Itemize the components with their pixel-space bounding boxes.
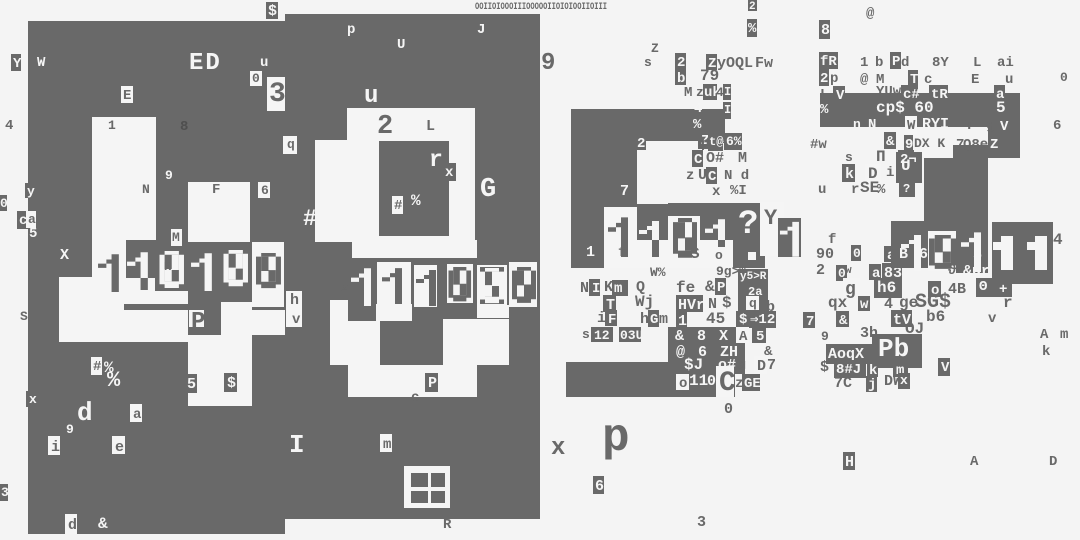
svg-text:w: w: [845, 265, 852, 277]
svg-text:0: 0: [0, 196, 8, 211]
svg-text:3: 3: [697, 514, 706, 531]
svg-text:2: 2: [637, 136, 645, 152]
svg-text:&: &: [839, 313, 848, 329]
svg-text:&: &: [705, 278, 715, 296]
svg-text:U: U: [901, 157, 911, 175]
svg-text:L: L: [973, 55, 981, 71]
svg-text:7: 7: [767, 357, 776, 374]
svg-text:o: o: [715, 248, 723, 263]
svg-text:U: U: [397, 37, 405, 53]
svg-text:7: 7: [620, 183, 629, 200]
svg-text:m: m: [614, 281, 622, 297]
svg-text:3: 3: [269, 79, 286, 110]
svg-text:h: h: [640, 311, 649, 328]
svg-text:c: c: [411, 390, 419, 406]
svg-text:6: 6: [261, 183, 269, 198]
svg-text:ED: ED: [189, 50, 222, 77]
svg-text:$: $: [739, 312, 747, 328]
svg-text:P: P: [892, 54, 900, 70]
svg-text:5: 5: [187, 376, 196, 393]
svg-text:y: y: [27, 184, 35, 199]
svg-text:%: %: [877, 182, 886, 198]
svg-text:z: z: [341, 281, 348, 295]
svg-text:ai: ai: [997, 55, 1014, 71]
svg-text:6: 6: [595, 478, 604, 495]
svg-text:Q8e: Q8e: [963, 137, 988, 153]
svg-text:O#: O#: [706, 150, 724, 167]
svg-text:90: 90: [816, 246, 834, 263]
svg-text:5: 5: [973, 247, 982, 264]
svg-text:C: C: [708, 169, 717, 185]
svg-text:v: v: [292, 312, 301, 328]
svg-text:S: S: [690, 245, 700, 263]
svg-text:z: z: [686, 168, 694, 184]
svg-text:h: h: [290, 292, 299, 309]
svg-text:V: V: [836, 88, 845, 104]
svg-text:1: 1: [108, 118, 116, 133]
svg-text:03U: 03U: [620, 328, 643, 343]
svg-text:Z: Z: [651, 41, 659, 56]
svg-text:?: ?: [738, 206, 758, 244]
svg-text:12: 12: [594, 328, 610, 343]
svg-text:&: &: [98, 515, 108, 533]
svg-text:0: 0: [853, 246, 861, 261]
svg-text:2: 2: [749, 1, 756, 13]
svg-text:p: p: [830, 71, 838, 87]
svg-text:R: R: [443, 517, 452, 533]
svg-text:n: n: [853, 117, 861, 132]
svg-text:F: F: [212, 182, 220, 198]
svg-text:q: q: [749, 296, 757, 311]
svg-text:5: 5: [996, 99, 1006, 117]
svg-text:6: 6: [919, 246, 928, 263]
svg-text:v: v: [988, 311, 997, 327]
svg-text:M: M: [172, 230, 180, 245]
svg-text:U: U: [698, 167, 707, 184]
svg-text:E: E: [123, 88, 131, 104]
svg-text:A: A: [970, 454, 979, 470]
svg-text:yOQL: yOQL: [717, 55, 753, 72]
svg-text:7: 7: [806, 314, 814, 330]
svg-text:r: r: [429, 147, 443, 173]
svg-text:8: 8: [697, 328, 706, 345]
svg-text:W: W: [907, 118, 916, 134]
svg-text:0: 0: [724, 401, 733, 418]
svg-text:N d: N d: [724, 168, 749, 184]
svg-text:%: %: [693, 117, 702, 133]
svg-text:u: u: [364, 83, 378, 110]
svg-text:?: ?: [903, 182, 910, 196]
svg-text:o: o: [679, 376, 687, 392]
svg-text:s: s: [582, 327, 590, 342]
svg-text:9: 9: [821, 329, 829, 344]
svg-text:#: #: [303, 206, 317, 232]
svg-text:W: W: [37, 55, 46, 71]
svg-text:8: 8: [821, 22, 830, 39]
svg-text:F: F: [608, 312, 616, 328]
svg-text:x: x: [551, 435, 565, 462]
svg-text:y5>R: y5>R: [740, 271, 767, 283]
svg-text:%: %: [107, 368, 121, 393]
svg-text:%: %: [411, 192, 421, 210]
svg-text:R: R: [164, 260, 172, 274]
svg-text:RYI: RYI: [922, 116, 949, 133]
svg-text:2: 2: [820, 71, 828, 87]
svg-text:M: M: [738, 150, 747, 167]
svg-text:r: r: [1003, 294, 1013, 312]
svg-text:g: g: [986, 118, 994, 134]
svg-text:E: E: [971, 72, 979, 88]
svg-text:$: $: [268, 3, 277, 20]
svg-text:g: g: [737, 357, 746, 374]
svg-text:9: 9: [541, 50, 555, 77]
svg-text:x: x: [445, 165, 454, 181]
svg-text:k: k: [845, 166, 854, 183]
svg-text:4: 4: [1053, 231, 1063, 249]
svg-text:1: 1: [586, 244, 595, 261]
svg-text:t@: t@: [709, 135, 723, 149]
svg-text:11: 11: [689, 372, 708, 390]
svg-text:&ur: &ur: [963, 263, 990, 280]
svg-text:5: 5: [756, 329, 764, 345]
svg-text:i: i: [597, 310, 606, 327]
svg-text:I: I: [289, 430, 305, 460]
svg-text:D: D: [1049, 454, 1057, 470]
svg-text:Wj: Wj: [635, 293, 654, 311]
svg-text:B: B: [899, 246, 908, 263]
svg-text:u: u: [260, 55, 268, 71]
svg-text:N: N: [868, 117, 876, 133]
svg-text:⇒12: ⇒12: [750, 312, 775, 328]
svg-text:I: I: [724, 103, 731, 117]
svg-text:%I: %I: [730, 183, 747, 199]
svg-text:J: J: [477, 22, 485, 38]
svg-text:X: X: [719, 328, 728, 345]
svg-text:Z: Z: [708, 56, 716, 72]
svg-text:%: %: [820, 102, 829, 118]
svg-text:S: S: [20, 309, 28, 324]
svg-text:u: u: [1005, 72, 1013, 88]
svg-text:2: 2: [816, 262, 825, 279]
svg-text:8: 8: [180, 119, 188, 135]
svg-text:0: 0: [1060, 70, 1068, 85]
svg-text:C: C: [694, 152, 703, 168]
svg-text:q: q: [287, 137, 295, 152]
svg-text:$: $: [820, 359, 829, 376]
svg-text:e: e: [115, 439, 124, 456]
svg-text:K: K: [604, 279, 613, 296]
svg-text:k: k: [1042, 344, 1050, 360]
svg-text:d: d: [77, 398, 93, 428]
svg-text:L: L: [820, 87, 828, 103]
svg-text:x: x: [712, 184, 721, 200]
svg-text:%: %: [748, 21, 757, 37]
svg-text:V: V: [941, 360, 950, 376]
svg-text:d: d: [68, 517, 77, 534]
svg-text:2: 2: [377, 112, 393, 142]
svg-text:h6: h6: [877, 279, 896, 297]
svg-text:N: N: [580, 280, 589, 297]
svg-text:m: m: [1060, 327, 1068, 343]
svg-text:I: I: [724, 85, 731, 99]
svg-text:r: r: [851, 182, 859, 198]
svg-text:9: 9: [165, 168, 173, 183]
svg-text:j: j: [868, 377, 876, 393]
svg-text:DX K: DX K: [914, 136, 945, 151]
svg-text:6%: 6%: [726, 134, 742, 149]
svg-text:H: H: [845, 454, 854, 471]
svg-text:s: s: [644, 55, 652, 70]
svg-text:Pb: Pb: [878, 334, 909, 364]
svg-text:m: m: [659, 311, 668, 328]
svg-text:x: x: [29, 392, 37, 407]
svg-text:D: D: [757, 358, 766, 375]
svg-text:i: i: [51, 439, 60, 456]
svg-text:cp$ 60: cp$ 60: [876, 99, 934, 117]
svg-text:x: x: [900, 373, 908, 388]
svg-text:a: a: [28, 212, 36, 227]
svg-text:T: T: [965, 118, 973, 134]
svg-text:i: i: [886, 165, 894, 181]
svg-text:YUw: YUw: [876, 84, 902, 100]
svg-text:&: &: [886, 134, 895, 150]
svg-text:Z: Z: [990, 137, 998, 153]
svg-text:Π: Π: [876, 148, 886, 166]
svg-text:p: p: [602, 412, 630, 464]
svg-text:w: w: [860, 297, 869, 313]
svg-text:u: u: [818, 182, 826, 198]
svg-text:V: V: [1000, 119, 1009, 135]
svg-text:5: 5: [29, 226, 37, 242]
svg-text:0: 0: [252, 71, 260, 86]
svg-text:W%: W%: [650, 265, 666, 280]
svg-text:m: m: [383, 437, 391, 453]
svg-text:3: 3: [1, 485, 9, 500]
svg-text:G: G: [480, 175, 496, 205]
svg-text:OOIIOIOOOIIIOOOOOIIOIOIOOIIOII: OOIIOIOOOIIIOOOOOIIOIOIOOIIOIII: [475, 2, 607, 13]
svg-text:X: X: [60, 247, 69, 264]
svg-text:#: #: [93, 359, 101, 375]
svg-text:fe: fe: [676, 279, 695, 297]
svg-text:M: M: [684, 85, 692, 101]
svg-text:@: @: [860, 72, 869, 88]
svg-text:6: 6: [1053, 118, 1061, 134]
svg-text:4: 4: [716, 85, 724, 100]
svg-text:7C: 7C: [834, 375, 852, 392]
svg-text:L: L: [426, 118, 435, 135]
svg-text:A: A: [739, 329, 748, 345]
svg-text:45: 45: [706, 310, 725, 328]
svg-text:4: 4: [694, 101, 702, 117]
svg-text:8Y: 8Y: [932, 55, 949, 71]
svg-text:4: 4: [5, 118, 13, 134]
svg-text:GE: GE: [744, 376, 761, 392]
svg-text:@: @: [866, 6, 875, 22]
svg-text:z: z: [696, 85, 704, 100]
svg-text:Y: Y: [764, 206, 778, 231]
svg-text:N: N: [142, 182, 150, 197]
svg-text:qx: qx: [828, 294, 848, 312]
svg-text:s: s: [845, 150, 853, 165]
svg-text:A: A: [1040, 327, 1049, 343]
svg-text:b: b: [875, 55, 883, 71]
svg-text:f: f: [618, 245, 626, 261]
svg-text:p: p: [347, 22, 355, 38]
svg-text:I: I: [592, 281, 600, 297]
svg-text:tR: tR: [931, 87, 948, 103]
svg-text:fR: fR: [820, 54, 837, 70]
svg-text:C: C: [719, 368, 736, 399]
svg-text:#: #: [394, 198, 402, 214]
svg-text:1: 1: [860, 55, 868, 71]
svg-text:a: a: [133, 407, 142, 423]
svg-text:2: 2: [677, 55, 685, 71]
svg-text:Θ: Θ: [979, 279, 987, 295]
svg-text:b6: b6: [926, 308, 945, 326]
svg-text:$: $: [227, 375, 236, 392]
svg-text:P: P: [428, 375, 437, 392]
svg-text:9: 9: [66, 422, 74, 437]
svg-text:&: &: [675, 328, 684, 345]
svg-text:d: d: [901, 55, 909, 71]
svg-text:ϑ: ϑ: [948, 263, 957, 279]
svg-text:Fw: Fw: [755, 55, 773, 72]
svg-text:0: 0: [707, 373, 716, 390]
svg-text:#w: #w: [810, 137, 827, 153]
svg-text:G: G: [650, 312, 658, 328]
svg-text:Y: Y: [13, 56, 22, 72]
